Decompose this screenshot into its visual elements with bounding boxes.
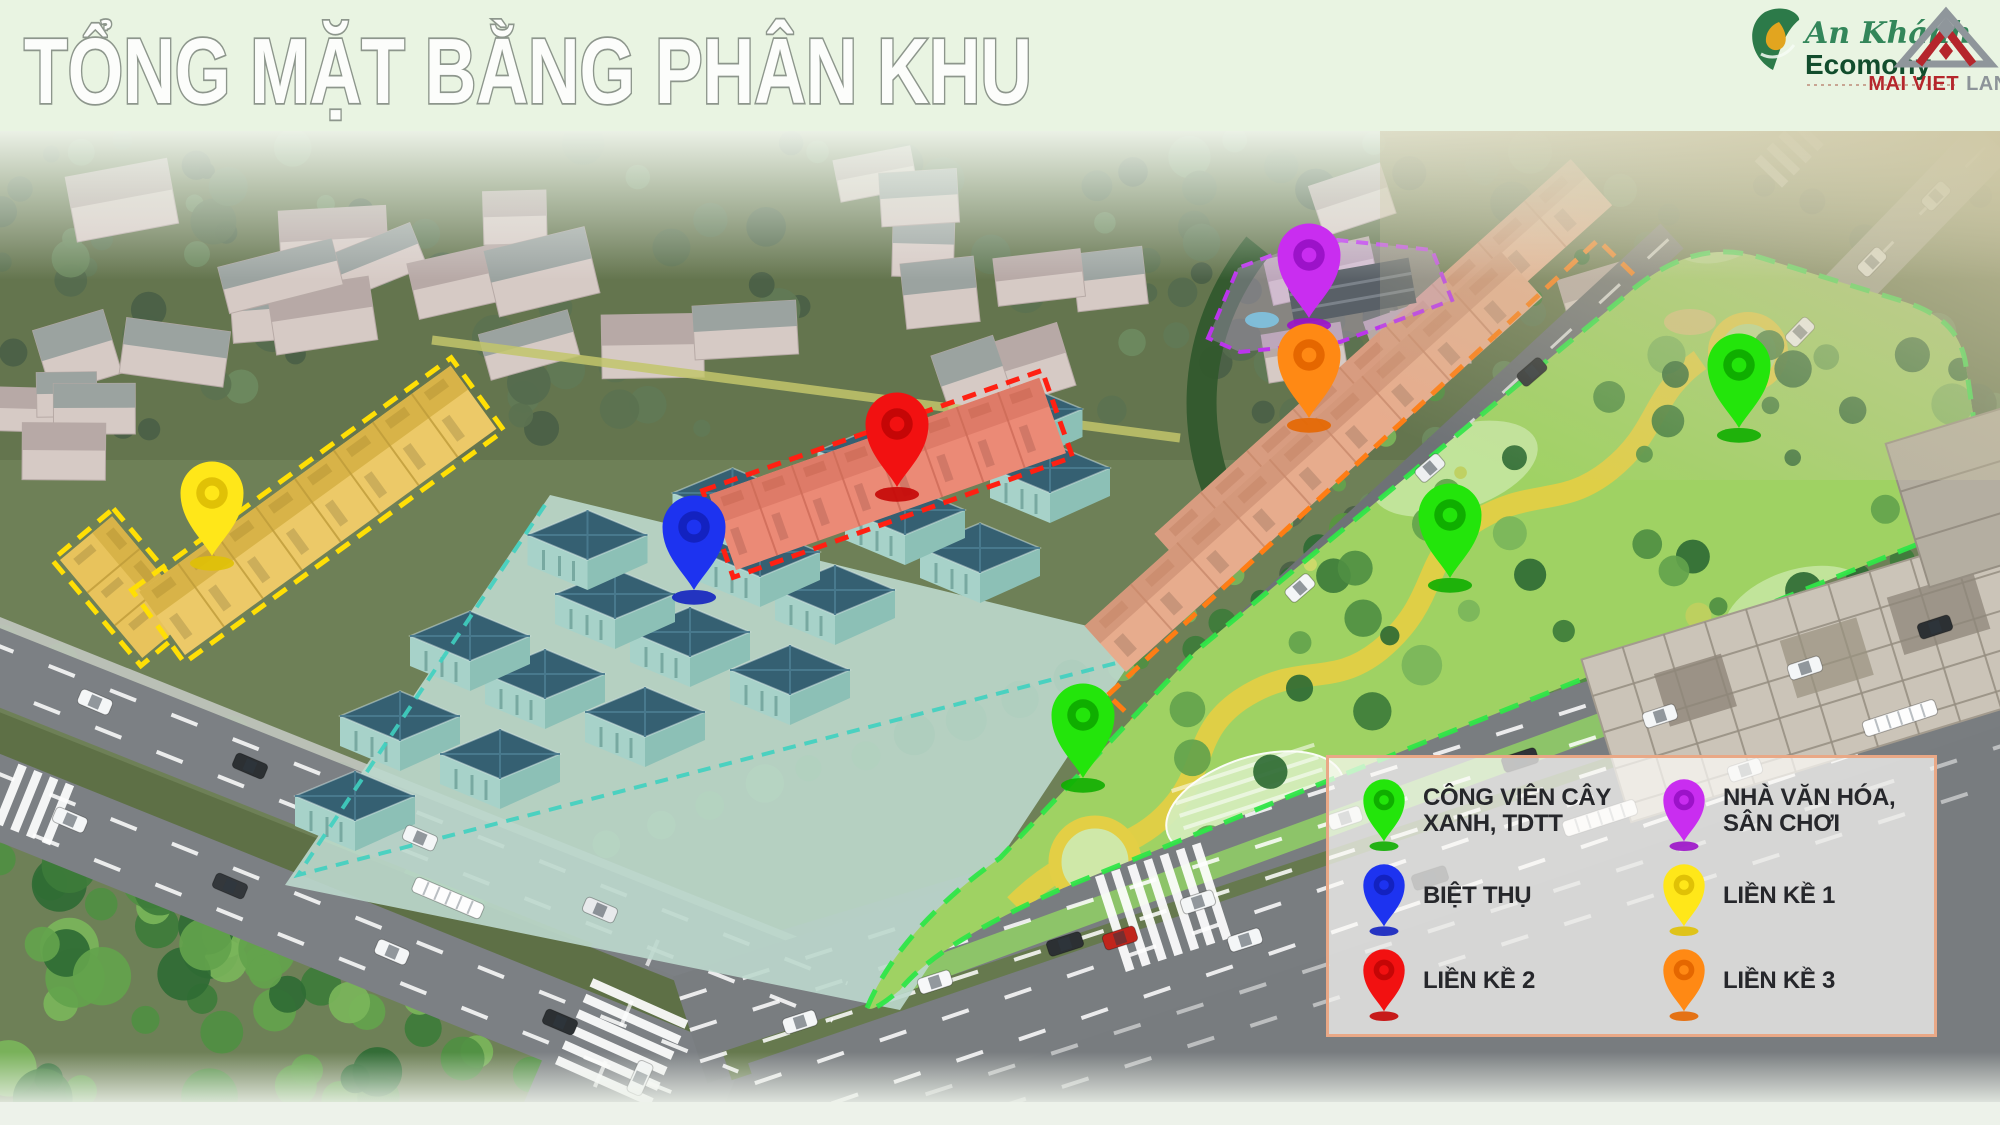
legend-label: LIỀN KỀ 3 [1723, 968, 1835, 994]
legend-pin-icon-lien-ke-1 [1659, 856, 1709, 936]
legend-label: LIỀN KỀ 1 [1723, 883, 1835, 909]
mai-viet-land-wordmark: MAI VIETLAND [1868, 73, 2000, 95]
legend-label: NHÀ VĂN HÓA, SÂN CHƠI [1723, 785, 1926, 837]
legend-label: CÔNG VIÊN CÂY XANH, TDTT [1423, 785, 1659, 837]
legend-pin-icon-nha-van-hoa [1659, 771, 1709, 851]
legend-panel: CÔNG VIÊN CÂY XANH, TDTTNHÀ VĂN HÓA, SÂN… [1326, 755, 1937, 1037]
legend-item-cong-vien-cay-xanh: CÔNG VIÊN CÂY XANH, TDTT [1359, 768, 1659, 853]
legend-item-lien-ke-1: LIỀN KỀ 1 [1659, 853, 1926, 938]
masterplan-slide: TỔNG MẶT BẰNG PHÂN KHU An Khánh Ecomony [0, 0, 2000, 1125]
legend-item-biet-thu: BIỆT THỤ [1359, 853, 1659, 938]
legend-item-lien-ke-3: LIỀN KỀ 3 [1659, 939, 1926, 1024]
legend-label: BIỆT THỤ [1423, 883, 1531, 909]
top-right-haze [1380, 130, 2000, 480]
page-title: TỔNG MẶT BẰNG PHÂN KHU [24, 19, 1032, 123]
bottom-strip [0, 1102, 2000, 1125]
legend-pin-icon-lien-ke-3 [1659, 941, 1709, 1021]
legend-pin-icon-cong-vien-cay-xanh [1359, 771, 1409, 851]
legend-pin-icon-lien-ke-2 [1359, 941, 1409, 1021]
legend-item-lien-ke-2: LIỀN KỀ 2 [1359, 939, 1659, 1024]
legend-label: LIỀN KỀ 2 [1423, 968, 1535, 994]
legend-pin-icon-biet-thu [1359, 856, 1409, 936]
legend-item-nha-van-hoa: NHÀ VĂN HÓA, SÂN CHƠI [1659, 768, 1926, 853]
header: TỔNG MẶT BẰNG PHÂN KHU An Khánh Ecomony [0, 0, 2000, 131]
